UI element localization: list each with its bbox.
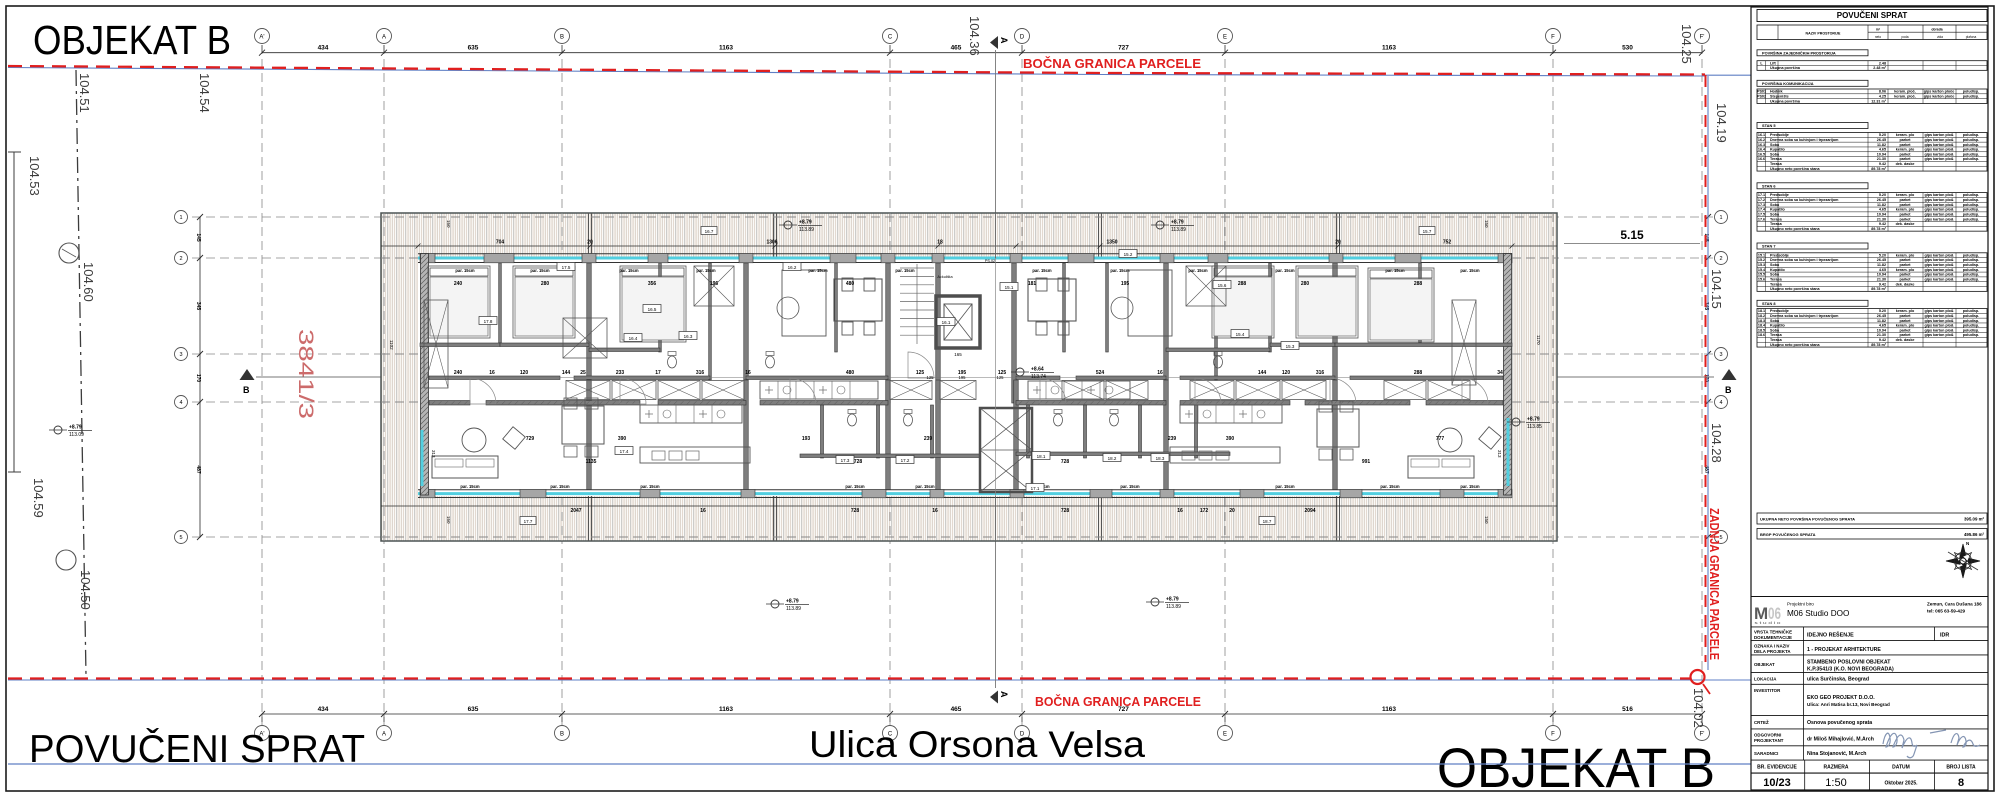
svg-text:Soba: Soba	[1770, 319, 1780, 323]
svg-text:1 - PROJEKAT ARHITEKTURE: 1 - PROJEKAT ARHITEKTURE	[1807, 647, 1881, 653]
svg-text:B: B	[560, 34, 564, 40]
svg-text:gips karton plo&: gips karton plo&	[1924, 198, 1953, 202]
svg-text:17.6: 17.6	[1758, 217, 1765, 221]
svg-text:PS02: PS02	[1757, 94, 1766, 98]
svg-text:390: 390	[1226, 436, 1235, 442]
svg-text:16.5: 16.5	[648, 307, 657, 312]
svg-text:A: A	[382, 34, 386, 40]
svg-text:9.42: 9.42	[1879, 222, 1886, 226]
svg-text:DELA PROJEKTA: DELA PROJEKTA	[1754, 649, 1791, 654]
svg-text:434: 434	[318, 45, 329, 52]
svg-text:Soba: Soba	[1770, 328, 1780, 332]
svg-text:1350: 1350	[1106, 240, 1117, 246]
svg-text:16.5: 16.5	[1758, 152, 1765, 156]
svg-text:17.4: 17.4	[1758, 208, 1766, 212]
svg-text:gips karton plo&: gips karton plo&	[1924, 193, 1953, 197]
svg-text:gips karton plo&: gips karton plo&	[1924, 273, 1953, 277]
svg-text:113.89: 113.89	[799, 227, 814, 233]
svg-text:16.4: 16.4	[1758, 148, 1766, 152]
svg-text:5.20: 5.20	[1879, 253, 1886, 257]
svg-text:34: 34	[1497, 370, 1503, 376]
svg-text:1:50: 1:50	[1825, 777, 1846, 789]
svg-text:16.2: 16.2	[788, 265, 797, 270]
svg-text:par. 15cm: par. 15cm	[808, 268, 828, 273]
svg-text:dek. daske: dek. daske	[1896, 222, 1915, 226]
svg-text:par. 15cm: par. 15cm	[619, 268, 639, 273]
svg-text:150: 150	[1484, 220, 1489, 228]
svg-text:STAN 5: STAN 5	[1762, 123, 1776, 128]
svg-text:poludisp.: poludisp.	[1963, 143, 1979, 147]
svg-text:poludisp.: poludisp.	[1963, 263, 1979, 267]
svg-text:keram. plo: keram. plo	[1896, 133, 1915, 137]
svg-text:Kupatilo: Kupatilo	[1770, 324, 1785, 328]
svg-text:4: 4	[179, 400, 182, 406]
svg-text:16: 16	[489, 370, 495, 376]
svg-text:4.25: 4.25	[1879, 94, 1886, 98]
svg-text:parket: parket	[1899, 138, 1911, 142]
svg-text:poda: poda	[1901, 35, 1908, 39]
svg-text:21.30: 21.30	[1877, 217, 1886, 221]
svg-text:poludisp.: poludisp.	[1963, 198, 1979, 202]
svg-text:BOČNA GRANICA PARCELE: BOČNA GRANICA PARCELE	[1023, 56, 1201, 71]
svg-text:ODGOVORNI: ODGOVORNI	[1754, 733, 1781, 738]
svg-text:15.3: 15.3	[1758, 263, 1765, 267]
svg-text:16.2: 16.2	[1758, 138, 1765, 142]
svg-text:gips karton ploče: gips karton ploče	[1924, 94, 1955, 98]
svg-text:Hodnik: Hodnik	[1770, 90, 1783, 94]
svg-text:18.5: 18.5	[1758, 328, 1765, 332]
svg-text:172: 172	[1200, 508, 1209, 514]
svg-text:17.2: 17.2	[1758, 198, 1765, 202]
svg-text:Kupatilo: Kupatilo	[1770, 208, 1785, 212]
svg-text:16.6: 16.6	[1758, 157, 1765, 161]
svg-text:777: 777	[1436, 436, 1445, 442]
svg-text:Projektni biro: Projektni biro	[1787, 602, 1814, 607]
svg-text:parket: parket	[1899, 213, 1911, 217]
svg-text:poludisp.: poludisp.	[1963, 328, 1979, 332]
svg-text:EKO GEO PROJEKT D.O.O.: EKO GEO PROJEKT D.O.O.	[1807, 695, 1875, 701]
svg-text:poludisp.: poludisp.	[1963, 208, 1979, 212]
svg-text:Terasa: Terasa	[1770, 222, 1783, 226]
svg-text:120: 120	[1282, 370, 1291, 376]
svg-text:530: 530	[1622, 45, 1633, 52]
svg-text:gips karton plo&: gips karton plo&	[1924, 268, 1953, 272]
svg-text:Ulica: Anri Matisa br.13, Novi: Ulica: Anri Matisa br.13, Novi Beograd	[1807, 702, 1890, 707]
svg-text:1: 1	[1719, 215, 1722, 221]
svg-text:PS01: PS01	[1757, 90, 1766, 94]
svg-text:par. 15cm: par. 15cm	[1110, 268, 1130, 273]
svg-text:poludisp.: poludisp.	[1963, 268, 1979, 272]
svg-text:20: 20	[587, 240, 593, 246]
svg-text:poludisp.: poludisp.	[1963, 319, 1979, 323]
svg-text:par. 15cm: par. 15cm	[1120, 484, 1140, 489]
svg-text:21.30: 21.30	[1877, 157, 1886, 161]
svg-text:104.36: 104.36	[967, 16, 982, 56]
svg-text:par. 15cm: par. 15cm	[915, 484, 935, 489]
svg-text:+8.79: +8.79	[1171, 220, 1184, 226]
svg-text:991: 991	[1362, 459, 1371, 465]
svg-text:ulica Surčinska, Beograd: ulica Surčinska, Beograd	[1807, 677, 1869, 683]
svg-text:gips karton plo&: gips karton plo&	[1924, 152, 1953, 156]
svg-text:9.42: 9.42	[1879, 162, 1886, 166]
svg-text:313: 313	[1497, 450, 1502, 458]
svg-text:gips karton plo&: gips karton plo&	[1924, 208, 1953, 212]
svg-text:113.74: 113.74	[1031, 374, 1046, 380]
svg-text:15.2: 15.2	[1758, 258, 1765, 262]
svg-text:288: 288	[1414, 281, 1423, 287]
svg-text:par. 15cm: par. 15cm	[550, 484, 570, 489]
svg-text:144: 144	[562, 370, 571, 376]
svg-text:196: 196	[710, 281, 719, 287]
svg-text:18.6: 18.6	[1758, 333, 1765, 337]
svg-text:1163: 1163	[719, 45, 733, 52]
svg-text:4.65: 4.65	[1879, 148, 1886, 152]
svg-text:113.09: 113.09	[69, 432, 84, 438]
svg-text:Predsoblje: Predsoblje	[1770, 253, 1789, 257]
svg-text:104.59: 104.59	[31, 478, 46, 518]
svg-text:104.28: 104.28	[1709, 423, 1724, 463]
svg-text:B: B	[243, 385, 250, 395]
svg-text:465: 465	[951, 706, 962, 713]
svg-text:16: 16	[745, 370, 751, 376]
svg-text:parket: parket	[1899, 152, 1911, 156]
svg-text:104.50: 104.50	[78, 570, 93, 610]
svg-text:125: 125	[997, 375, 1005, 380]
svg-text:gips karton plo&: gips karton plo&	[1924, 143, 1953, 147]
svg-text:parket: parket	[1899, 157, 1911, 161]
svg-text:280: 280	[1301, 281, 1310, 287]
svg-text:gips karton plo&: gips karton plo&	[1924, 253, 1953, 257]
svg-text:poludisp.: poludisp.	[1963, 273, 1979, 277]
svg-text:keram. plo: keram. plo	[1896, 253, 1915, 257]
svg-text:26.45: 26.45	[1877, 258, 1886, 262]
svg-text:par. 15cm: par. 15cm	[1385, 268, 1405, 273]
svg-text:D: D	[1020, 34, 1025, 40]
svg-text:18.2: 18.2	[1758, 314, 1765, 318]
svg-text:poludisp.: poludisp.	[1963, 324, 1979, 328]
svg-text:728: 728	[1061, 508, 1070, 514]
svg-text:10.94: 10.94	[1877, 273, 1887, 277]
svg-text:104.51: 104.51	[77, 73, 92, 113]
svg-text:Kupatilo: Kupatilo	[1770, 148, 1785, 152]
svg-text:NAZIV PROSTORIJE: NAZIV PROSTORIJE	[1806, 32, 1841, 36]
svg-text:104.60: 104.60	[81, 262, 96, 302]
svg-text:keram. plo: keram. plo	[1896, 193, 1915, 197]
svg-text:tel: 065 63-59-429: tel: 065 63-59-429	[1927, 609, 1965, 614]
svg-text:poludisp.: poludisp.	[1963, 258, 1979, 262]
svg-text:17.5: 17.5	[1758, 213, 1765, 217]
svg-text:728: 728	[854, 459, 863, 465]
svg-text:239: 239	[1168, 436, 1177, 442]
svg-text:STAN 8: STAN 8	[1762, 301, 1776, 306]
svg-text:poludisp.: poludisp.	[1963, 309, 1979, 313]
svg-text:E: E	[1223, 731, 1227, 737]
svg-text:STAMBENO POSLOVNI OBJEKAT: STAMBENO POSLOVNI OBJEKAT	[1807, 660, 1891, 666]
svg-text:gips karton plo&: gips karton plo&	[1924, 333, 1953, 337]
svg-text:BRGP POVUČENOG SPRATA: BRGP POVUČENOG SPRATA	[1760, 532, 1816, 537]
svg-text:18.7: 18.7	[1263, 519, 1272, 524]
svg-text:15.6: 15.6	[1758, 278, 1765, 282]
svg-text:gips karton plo&: gips karton plo&	[1924, 138, 1953, 142]
svg-text:728: 728	[851, 508, 860, 514]
svg-text:gips karton plo&: gips karton plo&	[1924, 217, 1953, 221]
svg-text:1306: 1306	[766, 240, 777, 246]
svg-text:STAN 6: STAN 6	[1762, 184, 1776, 189]
svg-text:728: 728	[1061, 459, 1070, 465]
svg-text:poludisp.: poludisp.	[1963, 94, 1979, 98]
svg-text:Nina Stojanović, M.Arch: Nina Stojanović, M.Arch	[1807, 751, 1866, 757]
svg-text:2: 2	[179, 256, 182, 262]
svg-text:Terasa: Terasa	[1770, 333, 1783, 337]
svg-text:89.78 m²: 89.78 m²	[1871, 227, 1887, 231]
svg-text:gips karton plo&: gips karton plo&	[1924, 324, 1953, 328]
svg-text:par. 15cm: par. 15cm	[1275, 268, 1295, 273]
svg-text:3841/3: 3841/3	[294, 329, 317, 419]
svg-text:Predsoblje: Predsoblje	[1770, 133, 1789, 137]
svg-text:17.8: 17.8	[484, 319, 493, 324]
svg-text:16.3: 16.3	[1758, 143, 1765, 147]
svg-text:LOKACIJA: LOKACIJA	[1754, 677, 1777, 682]
svg-text:17.3: 17.3	[1758, 203, 1765, 207]
svg-text:752: 752	[1443, 240, 1452, 246]
svg-text:89.78 m²: 89.78 m²	[1871, 343, 1887, 347]
svg-text:poludisp.: poludisp.	[1963, 253, 1979, 257]
svg-text:Dnevna soba sa kuhinjom i trpe: Dnevna soba sa kuhinjom i trpezarijom	[1770, 258, 1839, 262]
svg-text:120: 120	[520, 370, 529, 376]
svg-text:17.4: 17.4	[620, 449, 629, 454]
svg-text:5.20: 5.20	[1879, 133, 1886, 137]
svg-text:17.7: 17.7	[524, 519, 533, 524]
svg-text:gips karton plo&: gips karton plo&	[1924, 148, 1953, 152]
svg-text:Terasa: Terasa	[1770, 217, 1783, 221]
svg-text:16: 16	[932, 508, 938, 514]
svg-text:2: 2	[1719, 256, 1722, 262]
svg-text:113.85: 113.85	[1527, 424, 1542, 430]
svg-text:15.1: 15.1	[1758, 253, 1765, 257]
svg-text:193: 193	[802, 436, 811, 442]
svg-text:Terasa: Terasa	[1770, 157, 1783, 161]
svg-text:18.1: 18.1	[1758, 309, 1765, 313]
svg-text:15.3: 15.3	[1286, 344, 1295, 349]
svg-text:poludisp.: poludisp.	[1963, 203, 1979, 207]
svg-text:Ulica Orsona Velsa: Ulica Orsona Velsa	[809, 724, 1145, 765]
svg-text:A: A	[382, 731, 386, 737]
svg-text:s t u d i o: s t u d i o	[1755, 621, 1781, 625]
svg-text:keram. plo: keram. plo	[1896, 309, 1915, 313]
svg-text:26.45: 26.45	[1877, 314, 1886, 318]
svg-text:170: 170	[195, 374, 201, 383]
svg-text:A: A	[999, 37, 1009, 44]
svg-text:keram. plo: keram. plo	[1896, 148, 1915, 152]
svg-text:15.1: 15.1	[1005, 285, 1014, 290]
svg-text:dek. daske: dek. daske	[1896, 282, 1915, 286]
svg-text:288: 288	[1238, 281, 1247, 287]
svg-text:parket: parket	[1899, 314, 1911, 318]
svg-text:8.06: 8.06	[1879, 90, 1886, 94]
svg-text:gips karton plo&: gips karton plo&	[1924, 309, 1953, 313]
svg-text:2094: 2094	[1304, 508, 1315, 514]
svg-text:495.86 m²: 495.86 m²	[1964, 532, 1985, 537]
svg-text:10.94: 10.94	[1877, 328, 1887, 332]
svg-text:POVRŠINA KOMUNIKACIJA: POVRŠINA KOMUNIKACIJA	[1762, 81, 1814, 86]
svg-text:345: 345	[195, 302, 201, 311]
svg-text:Terasa: Terasa	[1770, 278, 1783, 282]
svg-text:poludisp.: poludisp.	[1963, 193, 1979, 197]
svg-text:727: 727	[1118, 45, 1129, 52]
svg-text:104.54: 104.54	[197, 73, 212, 113]
svg-text:9.42: 9.42	[1879, 338, 1886, 342]
svg-text:parket: parket	[1899, 328, 1911, 332]
svg-text:POVUČENI SPRAT: POVUČENI SPRAT	[1837, 11, 1908, 20]
svg-text:par. 15cm: par. 15cm	[845, 484, 865, 489]
svg-text:Oktobar 2025.: Oktobar 2025.	[1884, 781, 1918, 787]
svg-text:OBJEKAT B: OBJEKAT B	[33, 17, 231, 63]
svg-text:poludisp.: poludisp.	[1963, 217, 1979, 221]
svg-text:OZNAKA I NAZIV: OZNAKA I NAZIV	[1754, 644, 1790, 649]
svg-text:113.89: 113.89	[1166, 604, 1181, 610]
svg-text:SARADNICI: SARADNICI	[1754, 751, 1778, 756]
svg-text:gips karton plo&: gips karton plo&	[1924, 258, 1953, 262]
svg-text:B: B	[560, 731, 564, 737]
svg-text:125: 125	[916, 370, 925, 376]
svg-text:par. 15cm: par. 15cm	[1380, 484, 1400, 489]
svg-text:16.3: 16.3	[684, 334, 693, 339]
svg-text:keram. ploč.: keram. ploč.	[1894, 94, 1916, 98]
svg-text:16.1: 16.1	[1758, 133, 1765, 137]
svg-text:poludisp.: poludisp.	[1963, 213, 1979, 217]
svg-text:1163: 1163	[1382, 45, 1396, 52]
svg-text:gips karton plo&: gips karton plo&	[1924, 263, 1953, 267]
svg-text:par. 15cm: par. 15cm	[455, 268, 475, 273]
svg-text:4: 4	[1719, 400, 1722, 406]
svg-text:4.65: 4.65	[1879, 268, 1886, 272]
svg-text:390: 390	[618, 436, 627, 442]
svg-text:Ukupno neto površina stana: Ukupno neto površina stana	[1770, 227, 1821, 231]
svg-text:10/23: 10/23	[1763, 777, 1791, 789]
svg-text:keram. plo: keram. plo	[1896, 268, 1915, 272]
svg-text:parket: parket	[1899, 263, 1911, 267]
svg-text:1102: 1102	[389, 340, 394, 350]
svg-text:17.5: 17.5	[562, 265, 571, 270]
svg-text:20: 20	[1335, 240, 1341, 246]
svg-text:195: 195	[1121, 281, 1130, 287]
svg-text:434: 434	[318, 706, 329, 713]
svg-text:parket: parket	[1899, 198, 1911, 202]
svg-text:gips karton plo&: gips karton plo&	[1924, 314, 1953, 318]
svg-text:F': F'	[1700, 34, 1705, 40]
svg-text:2047: 2047	[570, 508, 581, 514]
svg-text:+8.79: +8.79	[69, 425, 82, 431]
svg-text:gips karton plo&: gips karton plo&	[1924, 319, 1953, 323]
svg-text:dr Miloš Mihajlović, M.Arch: dr Miloš Mihajlović, M.Arch	[1807, 737, 1874, 743]
svg-text:gips karton plo&: gips karton plo&	[1924, 213, 1953, 217]
svg-text:Soba: Soba	[1770, 203, 1780, 207]
svg-text:524: 524	[1096, 370, 1105, 376]
svg-text:1135: 1135	[586, 459, 597, 465]
svg-text:obrada: obrada	[1931, 28, 1942, 32]
svg-text:F: F	[1551, 34, 1555, 40]
svg-text:IDR: IDR	[1940, 633, 1949, 639]
svg-text:480: 480	[846, 281, 855, 287]
svg-text:parket: parket	[1899, 319, 1911, 323]
svg-text:par. 15cm: par. 15cm	[460, 484, 480, 489]
svg-text:+8.64: +8.64	[1031, 367, 1044, 373]
svg-text:239: 239	[924, 436, 933, 442]
svg-text:11.82: 11.82	[1877, 203, 1886, 207]
svg-text:Terasa: Terasa	[1770, 338, 1783, 342]
svg-text:316: 316	[696, 370, 705, 376]
svg-text:150: 150	[446, 220, 451, 228]
svg-text:Ukupna površina: Ukupna površina	[1770, 66, 1801, 70]
svg-text:Soba: Soba	[1770, 143, 1780, 147]
svg-text:240: 240	[454, 370, 463, 376]
svg-text:20: 20	[1229, 508, 1235, 514]
svg-text:17.1: 17.1	[1758, 193, 1765, 197]
svg-text:165: 165	[954, 352, 962, 357]
svg-text:15.6: 15.6	[1218, 283, 1227, 288]
svg-text:15.4: 15.4	[1236, 332, 1245, 337]
svg-text:poludisp.: poludisp.	[1963, 333, 1979, 337]
svg-text:Soba: Soba	[1770, 152, 1780, 156]
svg-text:parket: parket	[1899, 143, 1911, 147]
svg-text:150: 150	[446, 516, 451, 524]
svg-text:OBJEKAT: OBJEKAT	[1754, 662, 1775, 667]
svg-text:21.30: 21.30	[1877, 333, 1886, 337]
svg-text:104.25: 104.25	[1679, 24, 1694, 64]
svg-text:+8.79: +8.79	[1527, 417, 1540, 423]
svg-text:Terasa: Terasa	[1770, 162, 1783, 166]
svg-text:288: 288	[1414, 370, 1423, 376]
svg-text:5: 5	[179, 535, 182, 541]
svg-text:8: 8	[1958, 777, 1964, 789]
svg-text:+8.79: +8.79	[1166, 597, 1179, 603]
svg-text:16: 16	[700, 508, 706, 514]
svg-text:Terasa: Terasa	[1770, 282, 1783, 286]
svg-text:par. 15cm: par. 15cm	[1188, 268, 1208, 273]
svg-text:4.65: 4.65	[1879, 324, 1886, 328]
svg-text:395.09 m²: 395.09 m²	[1964, 517, 1985, 522]
svg-text:17.3: 17.3	[841, 458, 850, 463]
svg-text:Soba: Soba	[1770, 273, 1780, 277]
svg-text:15.5: 15.5	[1758, 273, 1765, 277]
svg-text:18.4: 18.4	[1758, 324, 1766, 328]
svg-text:Ukupno neto površina stana: Ukupno neto površina stana	[1770, 343, 1821, 347]
svg-text:10.94: 10.94	[1877, 213, 1887, 217]
svg-text:N: N	[1966, 541, 1969, 546]
svg-text:par. 15cm: par. 15cm	[1460, 268, 1480, 273]
svg-text:poludisp.: poludisp.	[1963, 133, 1979, 137]
svg-text:11.82: 11.82	[1877, 263, 1886, 267]
svg-text:VRSTA TEHNIČKE: VRSTA TEHNIČKE	[1754, 630, 1792, 635]
svg-text:635: 635	[468, 45, 479, 52]
svg-text:Kupatilo: Kupatilo	[1770, 268, 1785, 272]
svg-text:16.1: 16.1	[942, 320, 951, 325]
svg-text:104.19: 104.19	[1714, 103, 1729, 143]
svg-text:Dnevna soba sa kuhinjom i trpe: Dnevna soba sa kuhinjom i trpezarijom	[1770, 314, 1839, 318]
svg-text:26.45: 26.45	[1877, 198, 1886, 202]
svg-text:Predsoblje: Predsoblje	[1770, 193, 1789, 197]
svg-text:17: 17	[655, 370, 661, 376]
svg-text:PS.02: PS.02	[985, 259, 995, 263]
svg-text:poludisp.: poludisp.	[1963, 314, 1979, 318]
svg-text:150: 150	[1484, 516, 1489, 524]
svg-text:keram. ploč.: keram. ploč.	[1894, 90, 1916, 94]
svg-text:480: 480	[846, 370, 855, 376]
svg-text:Ukupno neto površina stana: Ukupno neto površina stana	[1770, 287, 1821, 291]
svg-text:9.42: 9.42	[1879, 282, 1886, 286]
svg-text:Ukupna površina: Ukupna površina	[1770, 99, 1801, 103]
svg-text:gips karton plo&: gips karton plo&	[1924, 328, 1953, 332]
